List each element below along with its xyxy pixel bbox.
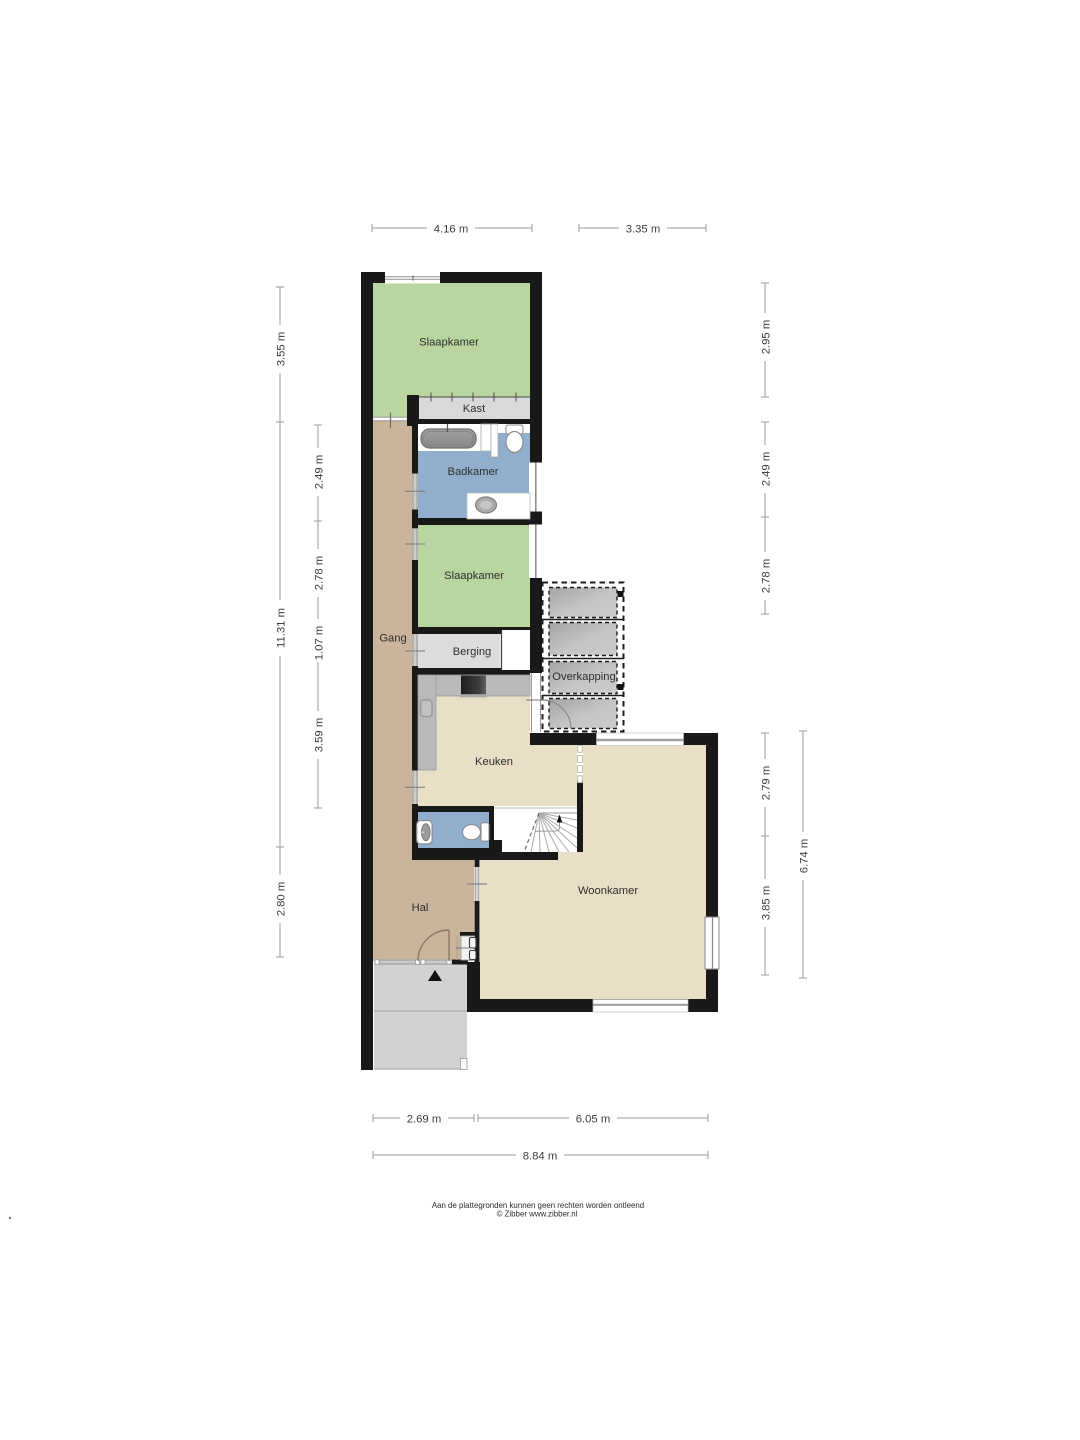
svg-text:6.05 m: 6.05 m [576, 1114, 611, 1126]
svg-text:Badkamer: Badkamer [448, 466, 499, 478]
svg-text:8.84 m: 8.84 m [523, 1151, 558, 1163]
svg-text:3.59 m: 3.59 m [314, 718, 326, 753]
svg-text:2.69 m: 2.69 m [407, 1114, 442, 1126]
svg-text:Slaapkamer: Slaapkamer [419, 337, 479, 349]
svg-text:Gang: Gang [379, 633, 406, 645]
svg-text:2.78 m: 2.78 m [314, 556, 326, 591]
svg-text:2.78 m: 2.78 m [761, 559, 773, 594]
svg-text:2.49 m: 2.49 m [761, 452, 773, 487]
svg-text:1.07 m: 1.07 m [314, 626, 326, 661]
svg-text:Keuken: Keuken [475, 756, 513, 768]
svg-text:Woonkamer: Woonkamer [578, 885, 638, 897]
svg-text:3.85 m: 3.85 m [761, 886, 773, 921]
svg-text:3.55 m: 3.55 m [276, 332, 288, 367]
svg-text:2.79 m: 2.79 m [761, 766, 773, 801]
svg-text:Slaapkamer: Slaapkamer [444, 570, 504, 582]
svg-text:2.95 m: 2.95 m [761, 320, 773, 355]
svg-text:3.35 m: 3.35 m [626, 224, 661, 236]
svg-text:6.74 m: 6.74 m [799, 839, 811, 874]
svg-text:Hal: Hal [412, 902, 429, 914]
svg-text:© Zibber www.zibber.nl: © Zibber www.zibber.nl [497, 1210, 578, 1219]
svg-text:Overkapping: Overkapping [552, 671, 615, 683]
svg-text:Kast: Kast [463, 403, 486, 415]
svg-text:4.16 m: 4.16 m [434, 224, 469, 236]
svg-text:2.49 m: 2.49 m [314, 455, 326, 490]
svg-text:Berging: Berging [453, 646, 492, 658]
svg-text:11.31 m: 11.31 m [276, 608, 288, 648]
svg-text:2.80 m: 2.80 m [276, 882, 288, 917]
